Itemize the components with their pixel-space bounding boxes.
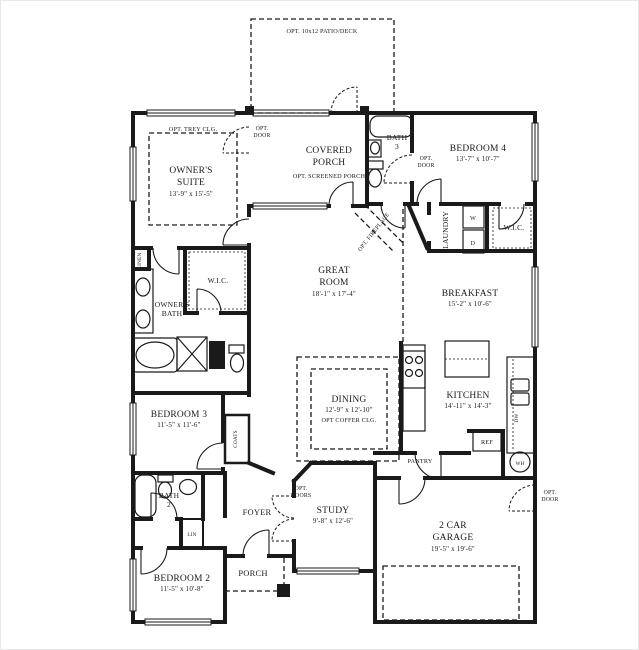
bedroom4-label: BEDROOM 4 [450, 144, 506, 154]
bath2-toilet-tank [158, 475, 173, 482]
bath3-label: 3 [395, 142, 399, 151]
pantry-label: PANTRY [407, 458, 432, 465]
covered-porch-label: COVERED [306, 146, 352, 156]
washer-label: W [470, 215, 476, 222]
kitchen-sink-basin-2 [511, 393, 529, 405]
foyer-label: FOYER [243, 507, 272, 517]
owners-wic-label: W.I.C. [208, 276, 229, 285]
rear-wic-label: W.I.C. [504, 223, 525, 232]
dining-label: DINING [332, 395, 367, 405]
bath3-sink [371, 142, 380, 154]
owners-toilet [231, 354, 244, 372]
lin-label: LIN [187, 532, 196, 538]
bedroom2-label: BEDROOM 2 [154, 574, 210, 584]
owners-suite-label: OWNER'S [169, 166, 212, 176]
owners-sink-2 [136, 310, 150, 328]
opt-door-label: DOOR [541, 497, 558, 503]
dining-dim: 12'-9" x 12'-10" [325, 406, 373, 414]
coats-label: COATS [233, 430, 239, 447]
garage-door-outline [383, 566, 519, 620]
bedroom3-label: BEDROOM 3 [151, 410, 207, 420]
coffer-ceiling-label: OPT COFFER CLG. [322, 417, 377, 424]
linen-label: LINEN [137, 253, 143, 270]
floor-plan: OPT. 10x12 PATIO/DECK OPT. TREY CLG. OWN… [1, 1, 639, 650]
bath2-label: BATH [159, 491, 180, 500]
porch-great-room-door [329, 182, 353, 206]
dw-label: DW [514, 413, 520, 422]
garage-label: GARAGE [433, 533, 474, 543]
bath2-tub [135, 475, 156, 517]
owners-suite-label: SUITE [177, 178, 205, 188]
burner [416, 370, 423, 377]
owners-sink-1 [136, 278, 150, 296]
owners-bath-label: OWNER'S [155, 300, 189, 309]
owners-suite-dim: 13'-9" x 15'-5" [169, 190, 213, 198]
breakfast-dim: 15'-2" x 10'-6" [448, 300, 492, 308]
kitchen-label: KITCHEN [446, 391, 489, 401]
opt-doors-label: DOORS [291, 493, 312, 499]
trey-ceiling-label: OPT. TREY CLG. [169, 126, 218, 133]
pantry-door [415, 453, 441, 479]
bath2-label: 2 [167, 500, 171, 509]
garage-dim: 19'-5" x 19'-6" [431, 545, 475, 553]
owners-toilet-tank [229, 345, 244, 353]
owners-shower-glass [177, 337, 207, 371]
front-door [243, 530, 269, 556]
opt-door-suite-porch [223, 127, 249, 153]
kitchen-dim: 14'-11" x 14'-3" [444, 402, 491, 410]
bath2-sink [180, 480, 197, 495]
owners-tub-deck [133, 338, 177, 372]
opt-door-garage [509, 485, 535, 511]
plumbing-chase [209, 341, 225, 369]
floor-plan-page: OPT. 10x12 PATIO/DECK OPT. TREY CLG. OWN… [0, 0, 639, 650]
patio-label: OPT. 10x12 PATIO/DECK [286, 28, 357, 35]
burner [406, 370, 413, 377]
great-room-label: ROOM [319, 278, 349, 288]
opt-door-patio [331, 87, 357, 113]
bath3-toilet [369, 169, 382, 187]
breakfast-label: BREAKFAST [442, 289, 499, 299]
bedroom3-dim: 11'-5" x 11'-6" [157, 421, 200, 429]
opt-doors-study-a [272, 496, 294, 518]
bedroom4-door [417, 179, 441, 204]
burner [406, 357, 413, 364]
opt-door-label: OPT. [544, 490, 557, 496]
garage-label: 2 CAR [439, 521, 467, 531]
opt-doors-label: OPT. [295, 486, 308, 492]
study-dim: 9'-8" x 12'-6" [313, 517, 353, 525]
bath3-label: BATH [387, 133, 408, 142]
owners-bath-door [153, 248, 179, 274]
opt-door-label: OPT. [256, 126, 269, 132]
porch-label: PORCH [238, 568, 267, 578]
porch-post-left [245, 106, 254, 115]
garage-entry-door [399, 478, 425, 504]
opt-door-label: OPT. [420, 156, 433, 162]
great-room-label: GREAT [318, 266, 350, 276]
stove [403, 351, 425, 388]
study-label: STUDY [317, 506, 350, 516]
bath3-toilet-tank [368, 161, 383, 169]
porch-column [277, 584, 290, 597]
bedroom3-door [197, 443, 223, 469]
covered-porch-label: PORCH [313, 158, 346, 168]
opt-fireplace-label: OPT. FIREPLACE [357, 212, 391, 253]
wh-label: WH [515, 461, 524, 467]
owners-bath-label: BATH [162, 309, 183, 318]
porch-post-right [360, 106, 369, 115]
dryer-label: D [471, 240, 476, 247]
bedroom2-door [141, 548, 167, 574]
owners-tub [136, 342, 174, 368]
kitchen-sink-basin-1 [511, 379, 529, 391]
bedroom4-dim: 13'-7" x 10'-7" [456, 155, 500, 163]
burner [416, 357, 423, 364]
ref-label: REF [481, 439, 493, 446]
opt-door-label: DOOR [417, 163, 434, 169]
owners-suite-door [223, 219, 249, 245]
opt-doors-study-b [272, 519, 294, 541]
laundry-label: LAUNDRY [441, 211, 450, 249]
opt-door-bath3 [384, 155, 412, 183]
bedroom2-dim: 11'-5" x 10'-8" [160, 585, 204, 593]
screened-porch-label: OPT. SCREENED PORCH [293, 173, 366, 180]
great-room-dim: 18'-1" x 17'-4" [312, 290, 356, 298]
opt-door-label: DOOR [253, 133, 270, 139]
